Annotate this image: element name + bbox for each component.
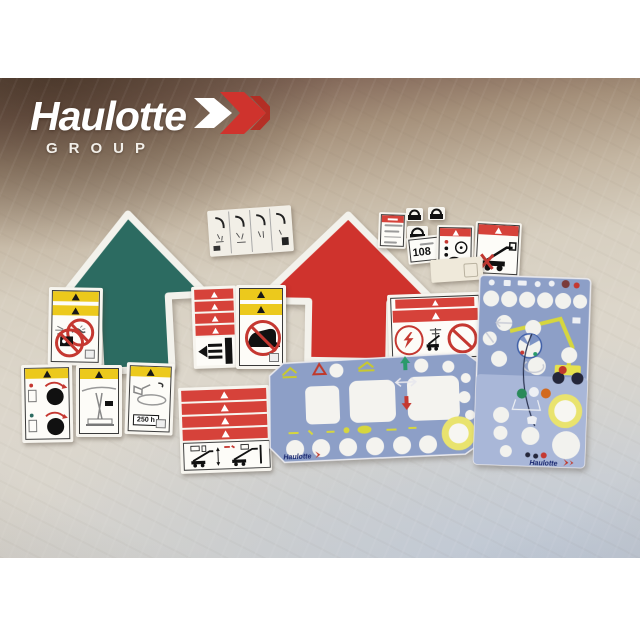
clamp-icon: [406, 208, 423, 221]
gauge-row-icon: [26, 410, 69, 439]
gauge-warning-decal: [21, 364, 73, 443]
battery-clamp-decal: [406, 208, 423, 221]
powerline-machine-icon: [423, 325, 448, 354]
prohibition-circle-icon: [447, 323, 478, 354]
faint-mark-icon: [463, 263, 478, 278]
hand-crush-warning-decal: [191, 285, 239, 369]
foot-crush-warning-decal: [236, 285, 286, 369]
no-spray-warning-decal: [48, 287, 103, 366]
number-label: 108: [412, 246, 438, 260]
svg-text:Haulotte: Haulotte: [529, 460, 557, 468]
clamp-icon: [428, 207, 445, 220]
lubrication-decal: 250 h: [124, 362, 174, 436]
text-warning-decal: [378, 212, 407, 249]
oilcan-ring-icon: [129, 378, 170, 407]
svg-text:Haulotte: Haulotte: [283, 453, 311, 461]
boom-diagram-warning-decal: [178, 385, 272, 474]
brand-wordmark: Haulotte: [30, 96, 186, 137]
code-box: [156, 419, 166, 428]
mast-platform-icon: [80, 381, 118, 429]
control-panel-decal: Haulotte: [266, 352, 488, 472]
brand-logo: Haulotte GROUP: [30, 90, 270, 157]
prohibition-circle-icon: [245, 320, 281, 356]
boom-reach-diagram-icon: [183, 440, 271, 471]
harness-step-icon: [228, 210, 251, 253]
harness-step-icon: [269, 207, 292, 250]
boom-lift-x-icon: [477, 236, 517, 274]
gauge-dial-icon: [517, 333, 542, 358]
gauge-row-icon: [25, 380, 68, 409]
platform-diagram-decal: [76, 365, 122, 437]
harness-step-icon: [249, 209, 272, 252]
hand-crush-icon: [196, 337, 236, 366]
battery-clamp-decal: [428, 207, 445, 220]
product-photo: Haulotte GROUP: [0, 0, 640, 640]
blank-decal: [430, 256, 483, 283]
brand-subtitle: GROUP: [46, 140, 270, 157]
code-box: [85, 350, 95, 359]
no-component-icon: [55, 328, 85, 358]
instruction-sheet-decal: [207, 205, 294, 257]
electric-hazard-icon: [394, 325, 424, 356]
brand-chevrons-icon: [192, 90, 270, 136]
right-panel-decal: Haulotte: [471, 274, 594, 470]
